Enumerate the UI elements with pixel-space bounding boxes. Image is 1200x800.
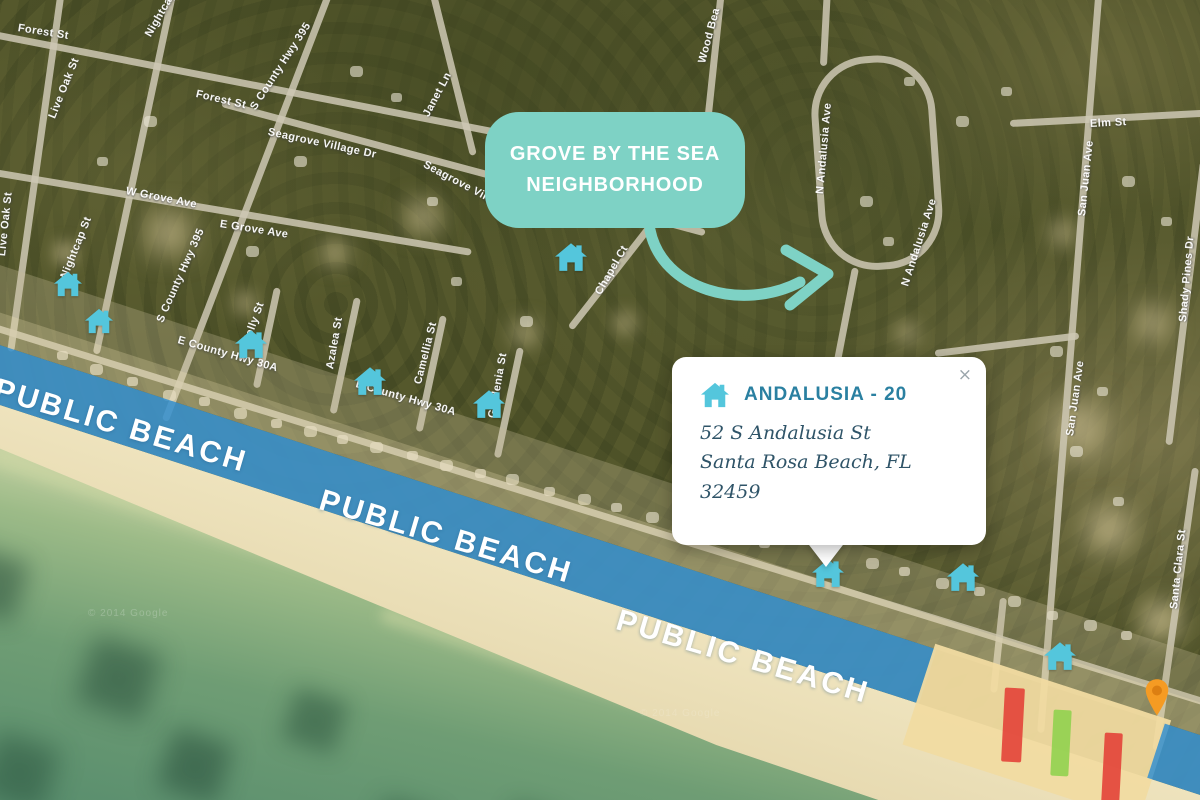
beach-access-stripe-green bbox=[1050, 710, 1071, 777]
house-marker-8[interactable] bbox=[946, 561, 980, 593]
street-label-elm-st: Elm St bbox=[1090, 116, 1127, 130]
road-right-connector bbox=[935, 332, 1080, 357]
house-icon bbox=[472, 388, 506, 420]
pin-icon bbox=[1142, 678, 1172, 718]
road-janet-ln bbox=[430, 0, 477, 156]
callout-line-2: NEIGHBORHOOD bbox=[526, 170, 703, 201]
map-attribution: © 2014 Google bbox=[640, 708, 720, 719]
street-label-santa-clara-st: Santa Clara St bbox=[1168, 529, 1188, 610]
street-label-s-county-hwy-395-2: S County Hwy 395 bbox=[155, 227, 207, 325]
location-pin[interactable] bbox=[1142, 678, 1172, 723]
house-icon bbox=[353, 365, 387, 397]
house-marker-5[interactable] bbox=[472, 388, 506, 420]
map-attribution: © 2014 Google bbox=[88, 608, 168, 619]
house-marker-9[interactable] bbox=[1043, 640, 1077, 672]
street-label-forest-st-2: Forest St bbox=[195, 88, 248, 111]
rooftops bbox=[0, 0, 9, 7]
house-marker-1[interactable] bbox=[53, 270, 83, 298]
house-icon bbox=[554, 241, 588, 273]
street-label-san-juan-ave-1: San Juan Ave bbox=[1076, 140, 1096, 217]
street-label-chapel-ct: Chapel Ct bbox=[593, 243, 631, 297]
house-marker-4[interactable] bbox=[353, 365, 387, 397]
callout-line-1: GROVE BY THE SEA bbox=[510, 139, 720, 170]
property-popup: × ANDALUSIA - 20 52 S Andalusia St Santa… bbox=[672, 357, 986, 545]
property-address-line-2: Santa Rosa Beach, FL 32459 bbox=[700, 448, 958, 507]
house-icon bbox=[1043, 640, 1077, 672]
popup-house-icon bbox=[700, 381, 730, 409]
street-label-w-grove-ave: W Grove Ave bbox=[125, 185, 198, 211]
house-icon bbox=[84, 307, 114, 335]
popup-close-button[interactable]: × bbox=[958, 365, 972, 385]
house-marker-6[interactable] bbox=[554, 241, 588, 273]
street-label-shady-pines-dr: Shady Pines Dr bbox=[1177, 236, 1196, 323]
house-icon bbox=[234, 328, 268, 360]
property-name: ANDALUSIA - 20 bbox=[744, 384, 907, 406]
street-label-janet-ln: Janet Ln bbox=[421, 70, 454, 118]
house-icon bbox=[946, 561, 980, 593]
map-background: PUBLIC BEACH PUBLIC BEACH PUBLIC BEACH F… bbox=[0, 0, 1200, 800]
house-icon bbox=[53, 270, 83, 298]
street-label-live-oak-st-2: Live Oak St bbox=[0, 191, 15, 256]
beach-access-stripe-red-1 bbox=[1001, 688, 1025, 763]
house-marker-3[interactable] bbox=[234, 328, 268, 360]
neighborhood-callout: GROVE BY THE SEA NEIGHBORHOOD bbox=[485, 112, 745, 228]
road-n-andalusia-stem-north bbox=[820, 0, 831, 66]
beach-access-stripe-red-2 bbox=[1101, 733, 1123, 800]
house-marker-2[interactable] bbox=[84, 307, 114, 335]
property-address-line-1: 52 S Andalusia St bbox=[700, 419, 958, 448]
